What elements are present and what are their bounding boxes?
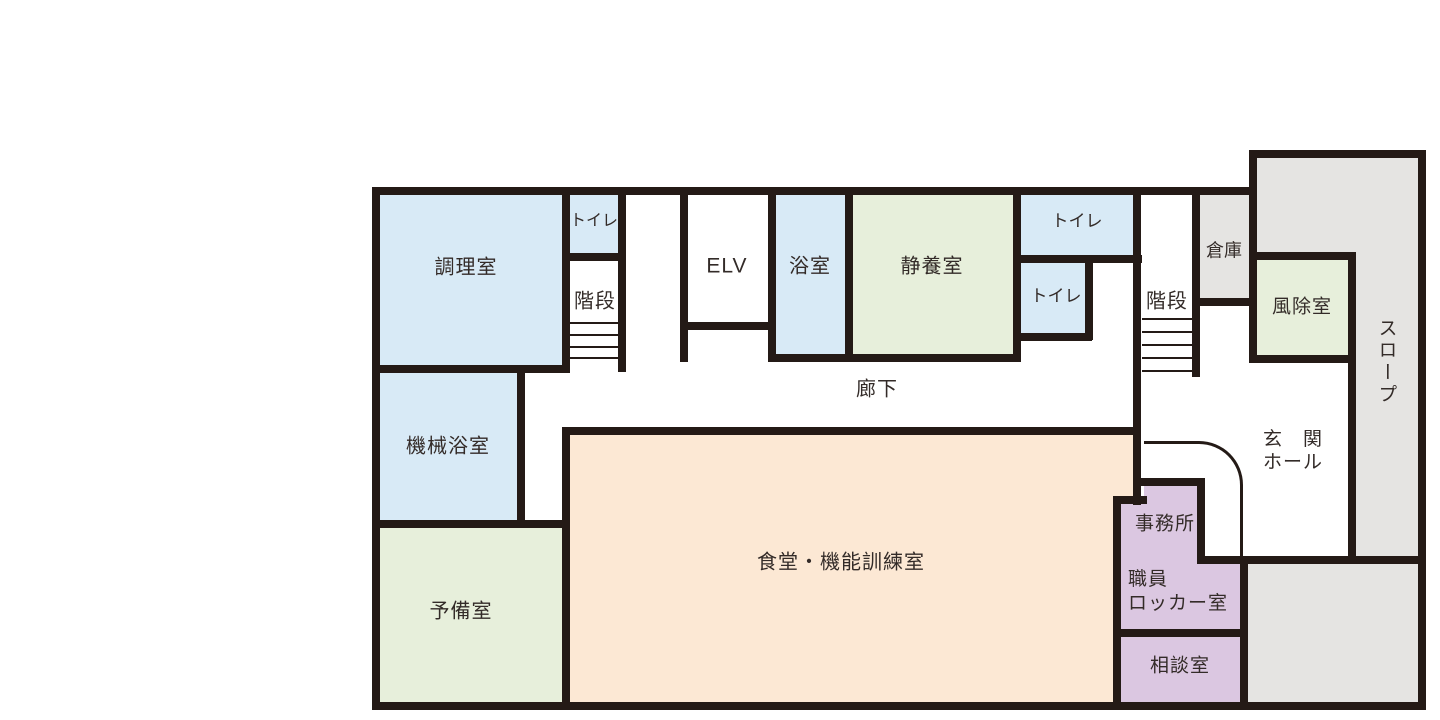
- entrance-hall-label: 玄 関 ホール: [1263, 428, 1323, 474]
- room-staff-locker-label-line2: ロッカー室: [1128, 592, 1228, 616]
- room-machine-bath-label: 機械浴室: [406, 436, 490, 459]
- wall-segment: [372, 520, 570, 528]
- room-kitchen-label: 調理室: [435, 257, 498, 280]
- room-stairs-right-label: 階段: [1146, 291, 1188, 314]
- slope-area-bottom: [1244, 560, 1422, 706]
- stair-treads-right: [1142, 318, 1192, 320]
- wall-segment: [680, 187, 688, 362]
- slope-area-top: [1253, 154, 1422, 256]
- room-storage-label: 倉庫: [1206, 240, 1242, 263]
- room-toilet-right-upper-label: トイレ: [1052, 210, 1103, 233]
- wall-segment: [1348, 252, 1356, 564]
- wall-segment: [1113, 496, 1121, 710]
- wall-segment: [1240, 556, 1248, 710]
- room-consultation-label: 相談室: [1150, 655, 1210, 678]
- stair-treads-right: [1142, 357, 1192, 359]
- wall-segment: [517, 365, 525, 527]
- room-staff-locker-label-line1: 職員: [1128, 568, 1228, 592]
- stair-treads-right: [1142, 331, 1192, 333]
- wall-segment: [562, 253, 626, 261]
- room-elevator-label: ELV: [706, 255, 747, 278]
- wall-segment: [618, 187, 626, 372]
- room-kitchen: [376, 191, 566, 369]
- entrance-hall-label-line2: ホール: [1263, 451, 1323, 474]
- wall-segment: [680, 322, 776, 330]
- wall-segment: [1192, 298, 1257, 306]
- stair-treads-right: [1142, 344, 1192, 346]
- entrance-hall-label-line1: 玄 関: [1263, 428, 1323, 451]
- slope-label: スロープ: [1375, 318, 1398, 406]
- wall-segment: [372, 187, 380, 710]
- room-dining-training-label: 食堂・機能訓練室: [757, 552, 925, 575]
- wall-segment: [372, 187, 1253, 195]
- stair-treads-left: [570, 334, 618, 336]
- wall-segment: [562, 427, 1140, 435]
- room-windbreak-label: 風除室: [1272, 296, 1332, 319]
- corridor-label: 廊下: [856, 379, 898, 402]
- wall-segment: [768, 187, 776, 362]
- wall-segment: [562, 427, 570, 710]
- stair-treads-left: [570, 346, 618, 348]
- wall-segment: [1418, 150, 1426, 710]
- entrance-hall-curved-wall: [1144, 441, 1243, 560]
- slope-area-strip: [1352, 256, 1422, 560]
- room-toilet-left-label: トイレ: [570, 210, 618, 233]
- wall-segment: [372, 365, 570, 373]
- wall-segment: [1249, 355, 1355, 363]
- room-stairs-left-label: 階段: [574, 291, 616, 314]
- wall-segment: [1013, 187, 1021, 362]
- wall-segment: [1013, 333, 1092, 341]
- wall-segment: [372, 702, 1426, 710]
- wall-segment: [1249, 150, 1257, 363]
- stair-treads-right: [1142, 370, 1192, 372]
- wall-segment: [1085, 255, 1093, 340]
- wall-segment: [845, 187, 853, 362]
- room-rest-label: 静養室: [901, 256, 964, 279]
- wall-segment: [1013, 255, 1142, 263]
- stair-treads-left: [570, 322, 618, 324]
- room-staff-locker-label: 職員 ロッカー室: [1128, 568, 1228, 616]
- room-spare-label: 予備室: [430, 601, 493, 624]
- wall-segment: [1249, 150, 1426, 158]
- room-toilet-right-lower-label: トイレ: [1031, 285, 1082, 308]
- floor-plan: 調理室 トイレ 階段 ELV 浴室 静養室 トイレ トイレ 階段 倉庫 風除室 …: [0, 0, 1440, 720]
- wall-segment: [1113, 629, 1247, 637]
- wall-segment: [1133, 187, 1141, 505]
- wall-segment: [768, 354, 1020, 362]
- stair-treads-left: [570, 357, 618, 359]
- room-office-label: 事務所: [1135, 513, 1195, 536]
- room-bath-label: 浴室: [789, 256, 831, 279]
- wall-segment: [1249, 252, 1355, 260]
- wall-segment: [562, 187, 570, 372]
- wall-segment: [1192, 187, 1200, 377]
